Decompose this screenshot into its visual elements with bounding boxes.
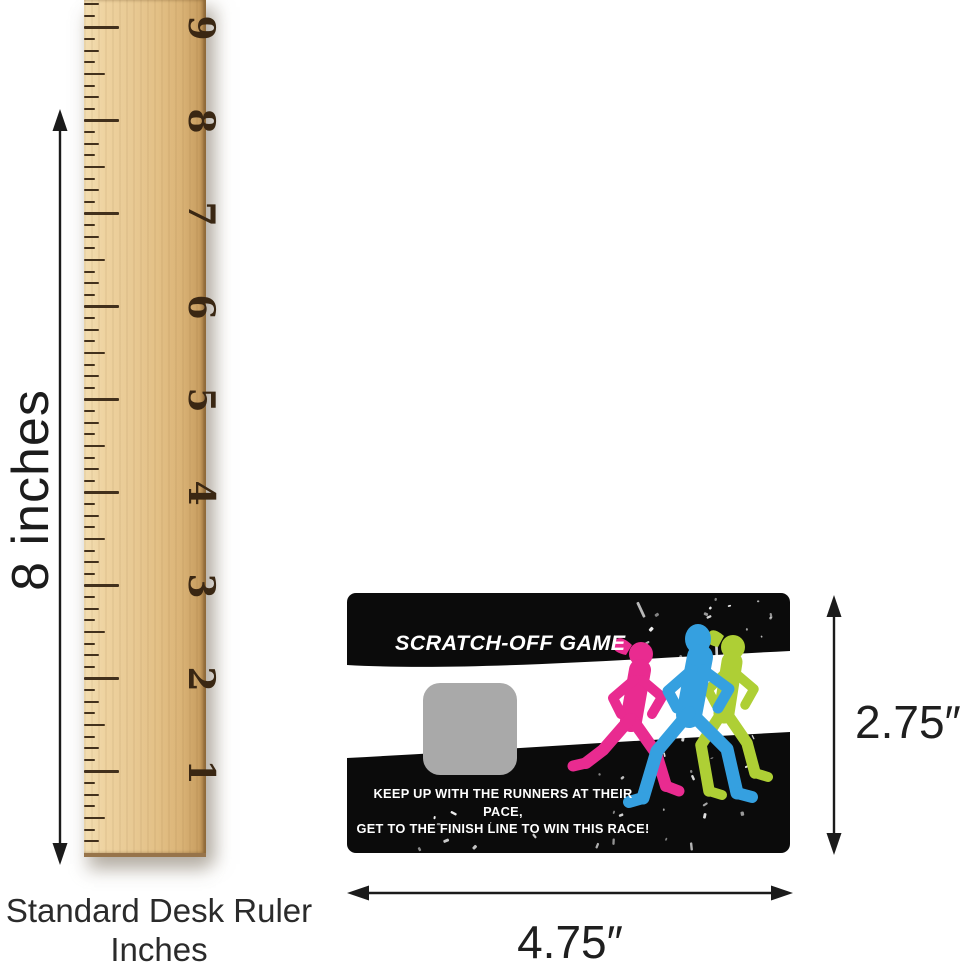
ruler-tick — [84, 119, 119, 122]
ruler-tick — [84, 596, 95, 598]
ruler-tick — [84, 61, 95, 63]
card-title: SCRATCH-OFF GAME — [395, 631, 655, 656]
ruler-tick — [84, 817, 105, 819]
ruler-tick — [84, 178, 95, 180]
ruler-tick — [84, 619, 95, 621]
ruler-tick — [84, 189, 99, 191]
ruler-tick — [84, 736, 95, 738]
arrow-up-icon — [827, 595, 842, 617]
ruler-tick — [84, 712, 95, 714]
ruler-tick — [84, 747, 99, 749]
ruler-tick — [84, 724, 105, 726]
wooden-ruler: 123456789 — [84, 0, 206, 857]
ruler-tick — [84, 608, 99, 610]
ruler-tick — [84, 422, 99, 424]
ruler-tick — [84, 154, 95, 156]
ruler-tick — [84, 50, 99, 52]
ruler-number: 8 — [183, 103, 219, 139]
arrow-right-icon — [771, 886, 793, 901]
card-height-arrow — [818, 591, 852, 859]
product-dimensions-image: 123456789 8 inches Standard Desk Ruler I… — [0, 0, 969, 968]
ruler-tick — [84, 282, 99, 284]
ruler-tick — [84, 445, 105, 447]
ruler-number: 7 — [183, 196, 219, 232]
scratch-off-card: SCRATCH-OFF GAME KEEP UP WITH THE RUNNER… — [347, 593, 790, 853]
ruler-tick — [84, 329, 99, 331]
ruler-tick — [84, 631, 105, 633]
ruler-tick — [84, 387, 95, 389]
ruler-caption-line1: Standard Desk Ruler — [0, 891, 318, 930]
ruler-tick — [84, 236, 99, 238]
card-tagline: KEEP UP WITH THE RUNNERS AT THEIR PACE, … — [353, 785, 653, 838]
ruler-tick — [84, 666, 95, 668]
ruler-tick — [84, 38, 95, 40]
ruler-number: 9 — [183, 10, 219, 46]
ruler-tick — [84, 468, 99, 470]
card-width-arrow — [342, 879, 798, 907]
ruler-tick — [84, 317, 95, 319]
ruler-tick — [84, 654, 99, 656]
ruler-tick — [84, 573, 95, 575]
ruler-tick — [84, 224, 95, 226]
ruler-tick — [84, 410, 95, 412]
ruler-tick — [84, 212, 119, 215]
ruler-caption: Standard Desk Ruler Inches — [0, 891, 318, 968]
card-tagline-line1: KEEP UP WITH THE RUNNERS AT THEIR PACE, — [353, 785, 653, 820]
arrow-left-icon — [347, 886, 369, 901]
ruler-number: 6 — [183, 289, 219, 325]
ruler-tick — [84, 26, 119, 29]
ruler-tick — [84, 305, 119, 308]
ruler-tick — [84, 73, 105, 75]
ruler-tick — [84, 259, 105, 261]
ruler-tick — [84, 561, 99, 563]
card-width-label: 4.75″ — [460, 915, 680, 968]
ruler-tick — [84, 201, 95, 203]
ruler-tick — [84, 794, 99, 796]
card-height-label: 2.75″ — [855, 695, 961, 749]
ruler-tick — [84, 3, 99, 5]
ruler-tick — [84, 352, 105, 354]
ruler-tick — [84, 247, 95, 249]
ruler-tick — [84, 166, 105, 168]
arrow-down-icon — [53, 843, 68, 865]
ruler-tick — [84, 840, 99, 842]
ruler-tick — [84, 677, 119, 680]
ruler-caption-line2: Inches — [0, 930, 318, 968]
ruler-number: 2 — [183, 661, 219, 697]
ruler-tick — [84, 759, 95, 761]
ruler-tick — [84, 550, 95, 552]
ruler-number: 1 — [183, 754, 219, 790]
ruler-tick — [84, 689, 95, 691]
ruler-tick — [84, 584, 119, 587]
ruler-tick — [84, 143, 99, 145]
ruler-tick — [84, 805, 95, 807]
ruler-tick — [84, 131, 95, 133]
ruler-number: 4 — [183, 475, 219, 511]
ruler-tick — [84, 15, 95, 17]
ruler-number: 3 — [183, 568, 219, 604]
ruler-tick — [84, 538, 105, 540]
ruler-tick — [84, 480, 95, 482]
ruler-height-label: 8 inches — [1, 365, 57, 615]
ruler-tick — [84, 108, 95, 110]
ruler-tick — [84, 294, 95, 296]
arrow-down-icon — [827, 833, 842, 855]
ruler-tick — [84, 782, 95, 784]
ruler-tick — [84, 398, 119, 401]
ruler-number: 5 — [183, 382, 219, 418]
ruler-tick — [84, 340, 95, 342]
ruler-tick — [84, 515, 99, 517]
ruler-tick — [84, 526, 95, 528]
arrow-up-icon — [53, 109, 68, 131]
ruler-tick — [84, 433, 95, 435]
ruler-tick — [84, 643, 95, 645]
ruler-tick — [84, 364, 95, 366]
ruler-tick — [84, 491, 119, 494]
ruler-tick — [84, 701, 99, 703]
ruler-tick — [84, 375, 99, 377]
ruler-tick — [84, 503, 95, 505]
ruler-tick — [84, 770, 119, 773]
scratch-area — [423, 683, 517, 775]
card-tagline-line2: GET TO THE FINISH LINE TO WIN THIS RACE! — [353, 820, 653, 838]
ruler-tick — [84, 457, 95, 459]
ruler-tick — [84, 271, 95, 273]
ruler-tick — [84, 85, 95, 87]
ruler-tick — [84, 96, 99, 98]
ruler-tick — [84, 829, 95, 831]
